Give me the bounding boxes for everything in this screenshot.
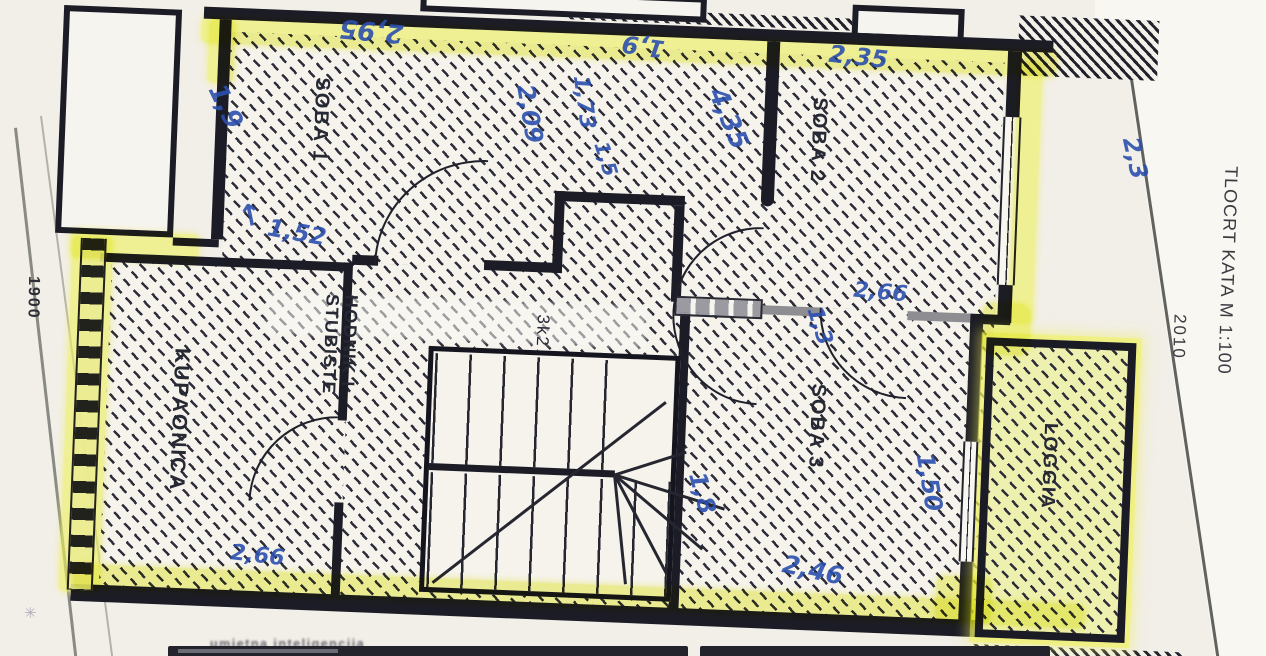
- lower-floor-wall-highlight: [178, 649, 338, 653]
- room-label-soba2: SOBA 2: [806, 97, 830, 184]
- scanned-floorplan-page: SOBA 1 SOBA 2 SOBA 3 HODNIK I STUBISTE K…: [0, 0, 1266, 656]
- stair-mark-label: 3k2: [533, 314, 552, 348]
- pen-measure-top-left: 2,95: [338, 12, 405, 48]
- dimension-1900: 1900: [24, 276, 42, 320]
- pen-measure-soba3-top: 2,66: [852, 278, 908, 308]
- plan-year: 2010: [1169, 314, 1188, 360]
- neighbour-room-top-left: [55, 5, 182, 238]
- highlight-loggia-corner: [935, 575, 992, 622]
- stair-winder-line-1: [614, 451, 686, 476]
- lower-floor-wall-strip-right: [700, 646, 1050, 656]
- room-label-hodnik-stubiste: HODNIK I STUBISTE: [319, 294, 361, 396]
- highlight-soba1-left: [207, 19, 236, 84]
- pen-measure-top-mid: 1,9: [620, 29, 666, 63]
- floorplan-drawing: SOBA 1 SOBA 2 SOBA 3 HODNIK I STUBISTE K…: [36, 0, 1214, 656]
- room-label-loggia: LOGGIA: [1037, 422, 1060, 510]
- stair-upper-flight: [431, 353, 621, 470]
- room-label-soba1: SOBA 1: [308, 77, 332, 164]
- smudge-mark: ✳: [24, 604, 37, 622]
- staircase: [419, 346, 681, 602]
- room-label-kupaonica: KUPAONICA: [165, 348, 193, 492]
- room-label-soba3: SOBA 3: [804, 383, 828, 470]
- highlight-right-corner: [981, 302, 1031, 356]
- pen-measure-right-outside: 2,3: [1117, 134, 1154, 182]
